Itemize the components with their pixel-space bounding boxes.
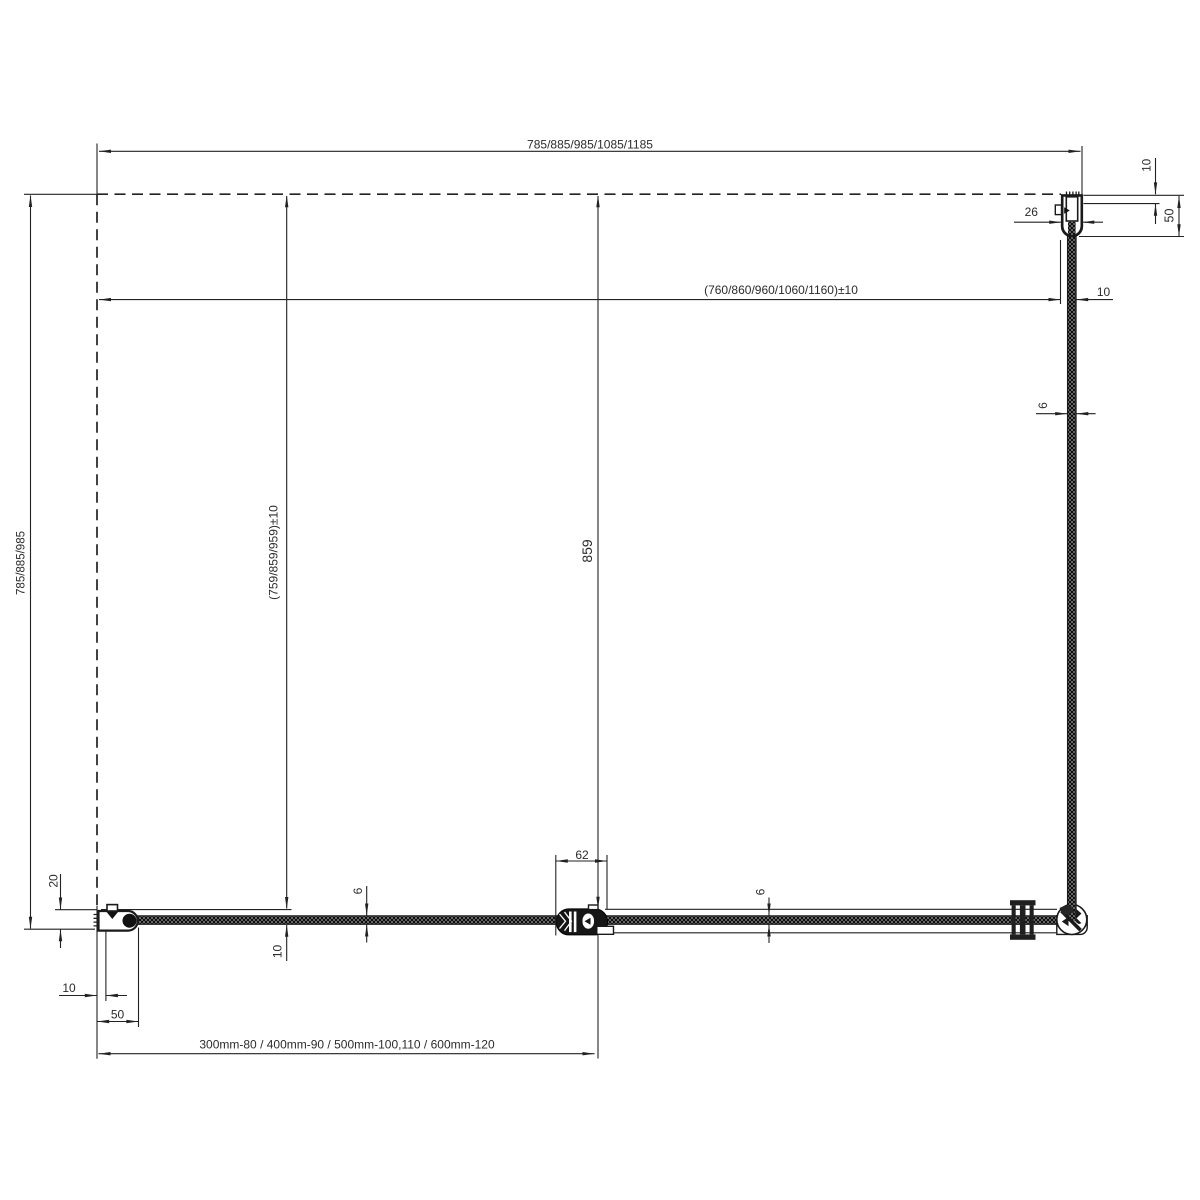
svg-text:20: 20 (47, 874, 61, 888)
svg-text:(760/860/960/1060/1160)±10: (760/860/960/1060/1160)±10 (704, 283, 858, 297)
svg-text:(759/859/959)±10: (759/859/959)±10 (267, 505, 281, 600)
svg-text:6: 6 (754, 888, 768, 895)
svg-text:859: 859 (579, 539, 595, 563)
svg-text:10: 10 (1097, 285, 1111, 299)
svg-text:10: 10 (271, 945, 285, 959)
svg-text:785/885/985/1085/1185: 785/885/985/1085/1185 (527, 137, 653, 151)
svg-text:10: 10 (1141, 159, 1153, 172)
svg-text:50: 50 (1163, 209, 1177, 223)
svg-text:300mm-80 / 400mm-90 / 500mm-10: 300mm-80 / 400mm-90 / 500mm-100,110 / 60… (199, 1038, 495, 1052)
svg-text:785/885/985: 785/885/985 (16, 531, 28, 595)
svg-text:6: 6 (351, 887, 365, 894)
svg-text:62: 62 (575, 848, 589, 862)
svg-text:10: 10 (62, 981, 76, 995)
svg-text:50: 50 (111, 1008, 125, 1022)
svg-text:6: 6 (1036, 402, 1050, 409)
svg-text:26: 26 (1025, 205, 1039, 219)
